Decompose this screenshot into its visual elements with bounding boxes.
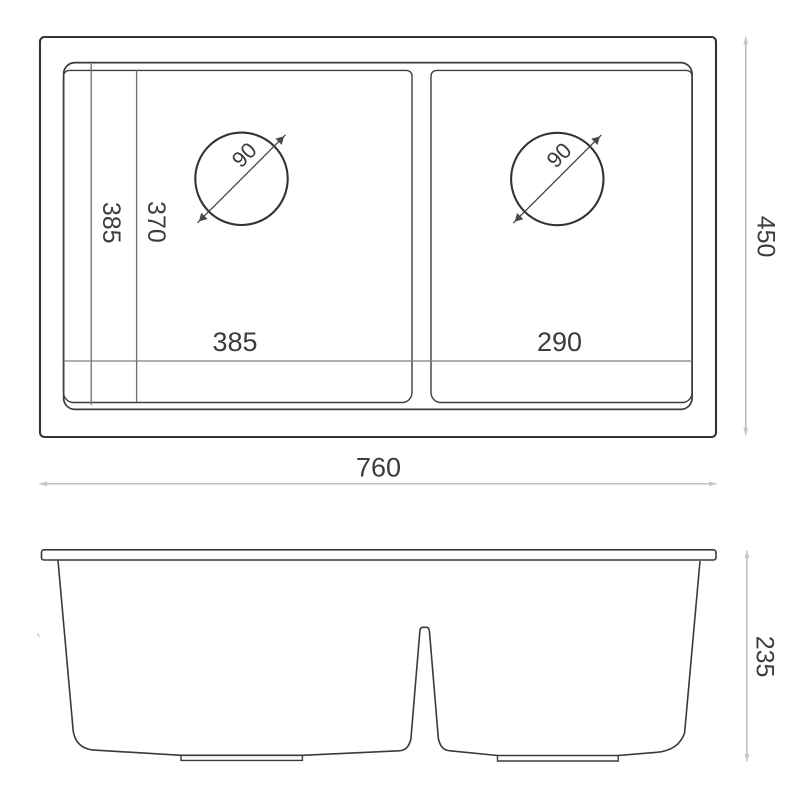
svg-text:370: 370 (142, 201, 170, 243)
svg-text:760: 760 (356, 453, 401, 483)
svg-text:90: 90 (227, 137, 262, 172)
svg-text:450: 450 (752, 216, 780, 258)
svg-text:90: 90 (542, 138, 577, 173)
svg-text:290: 290 (537, 327, 582, 357)
svg-text:235: 235 (750, 636, 778, 678)
svg-text:385: 385 (212, 327, 257, 357)
svg-text:385: 385 (97, 202, 125, 244)
